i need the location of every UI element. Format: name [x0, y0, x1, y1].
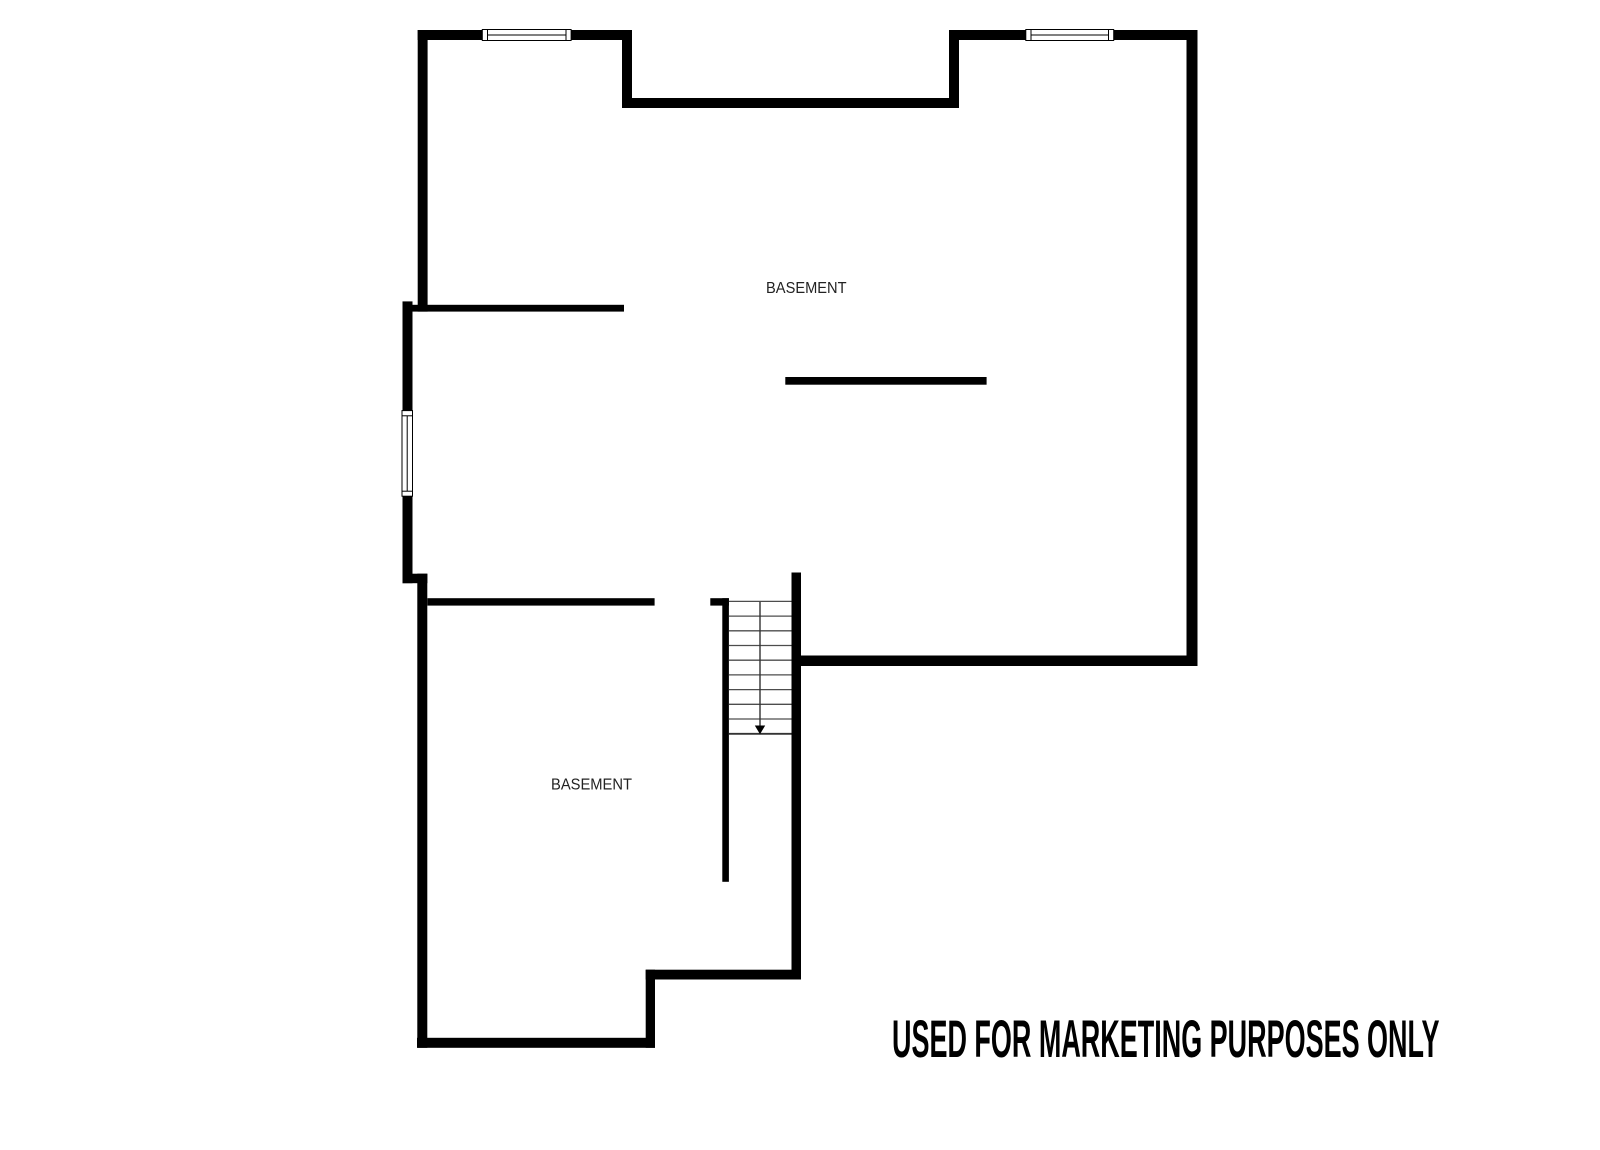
svg-text:BASEMENT: BASEMENT — [766, 280, 847, 297]
svg-text:USED FOR MARKETING PURPOSES ON: USED FOR MARKETING PURPOSES ONLY — [892, 1010, 1440, 1069]
svg-text:BASEMENT: BASEMENT — [551, 777, 632, 794]
